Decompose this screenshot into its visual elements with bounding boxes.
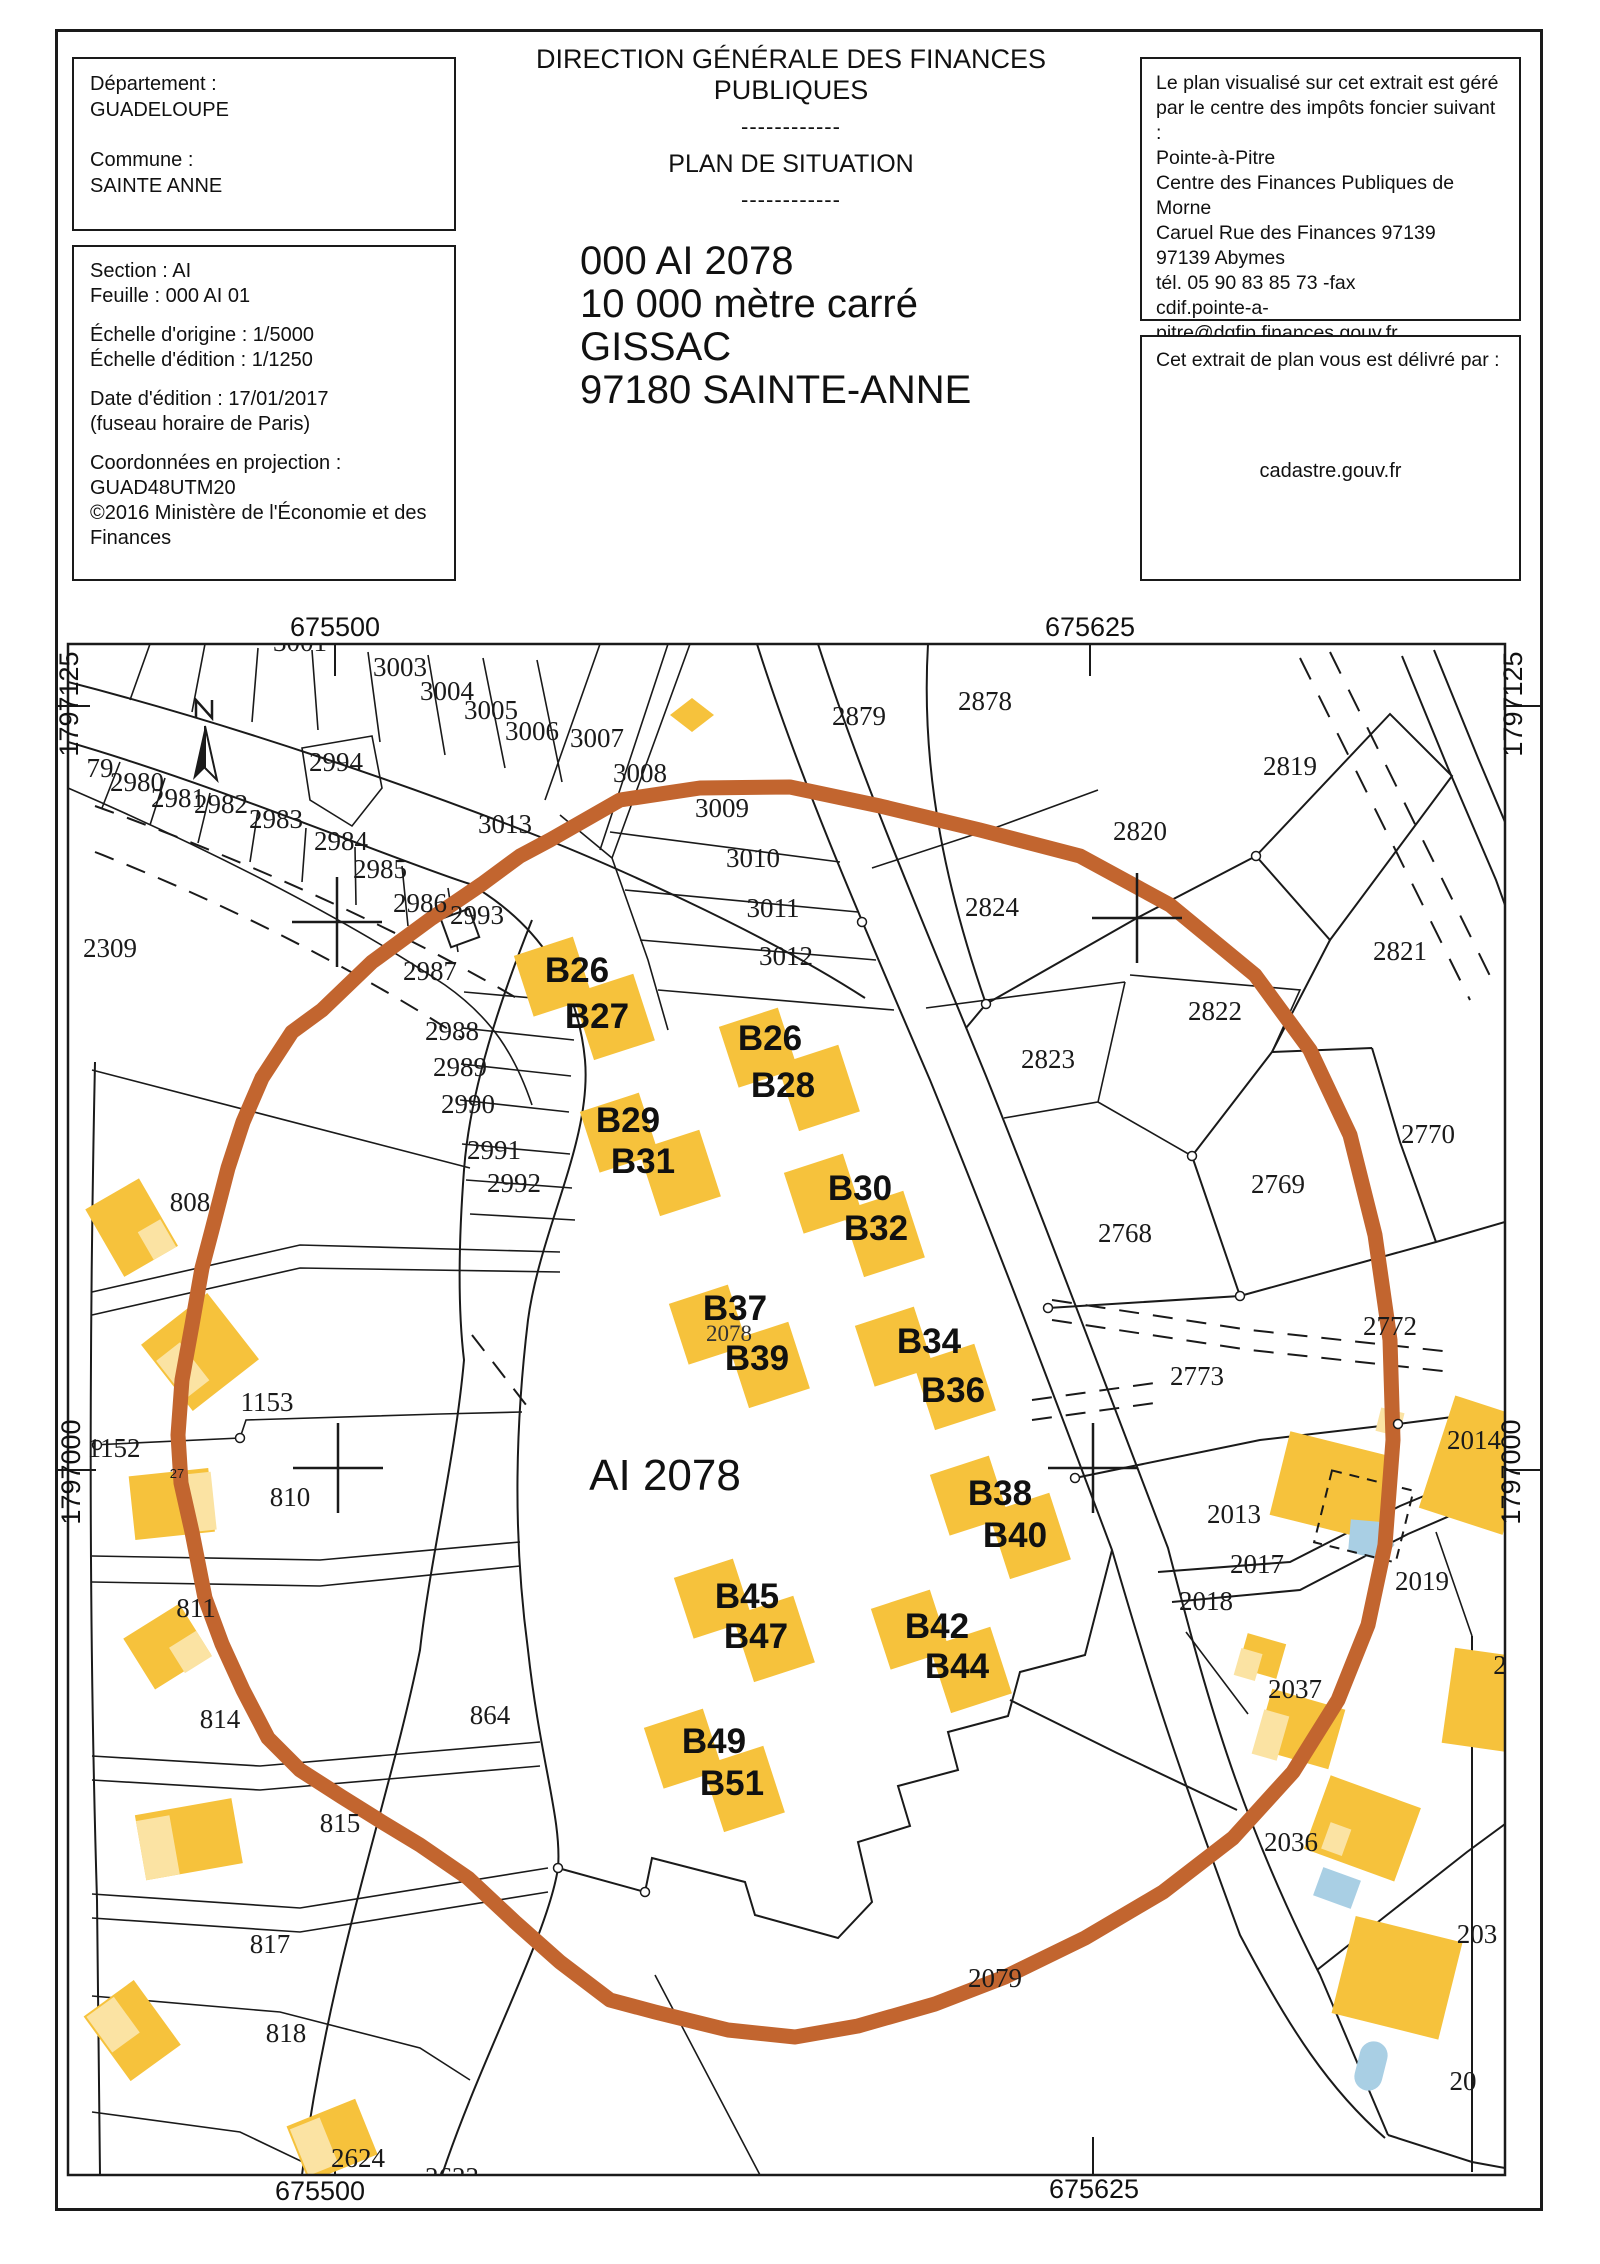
parcel-label-2018: 2018	[1179, 1586, 1233, 1616]
building-label-B29: B29	[596, 1101, 660, 1140]
parcel-label-814: 814	[200, 1704, 241, 1734]
parcel-label-3013: 3013	[478, 809, 532, 839]
parcel-label-3012: 3012	[759, 941, 813, 971]
parcel-label-27: 27	[170, 1466, 184, 1481]
map-labels: 3001300330043005300630073008300930103011…	[83, 627, 1507, 2192]
building-label-B51: B51	[700, 1764, 764, 1803]
parcel-label-2986: 2986	[393, 888, 447, 918]
parcel-label-3007: 3007	[570, 723, 624, 753]
parcel-label-2991: 2991	[467, 1135, 521, 1165]
building-label-B47: B47	[724, 1617, 788, 1656]
parcel-label-2992: 2992	[487, 1168, 541, 1198]
parcel-label-2079: 2079	[968, 1963, 1022, 1993]
parcel-label-2984: 2984	[314, 826, 369, 856]
parcel-label-2014: 2014	[1447, 1425, 1502, 1455]
parcel-label-2990: 2990	[441, 1089, 495, 1119]
parcel-label-2821: 2821	[1373, 936, 1427, 966]
parcel-label-1153: 1153	[241, 1387, 294, 1417]
parcel-label-3011: 3011	[747, 893, 800, 923]
parcel-label-2823: 2823	[1021, 1044, 1075, 1074]
parcel-label-2982: 2982	[194, 789, 248, 819]
parcel-label-3006: 3006	[505, 716, 559, 746]
pool-2036	[1313, 1867, 1361, 1909]
coord-top-right: 675625	[1045, 612, 1135, 642]
parcel-label-3009: 3009	[695, 793, 749, 823]
building-right-edge	[1442, 1648, 1523, 1753]
building-label-B26: B26	[738, 1019, 802, 1058]
coord-top-left: 675500	[290, 612, 380, 642]
parcel-label-2773: 2773	[1170, 1361, 1224, 1391]
building-label-B34: B34	[897, 1322, 962, 1361]
parcel-label-2822: 2822	[1188, 996, 1242, 1026]
building-label-B31: B31	[611, 1142, 675, 1181]
parcel-label-811: 811	[176, 1593, 216, 1623]
coord-right-bottom: 1797000	[1496, 1419, 1526, 1524]
parcel-label-20: 20	[1450, 2066, 1477, 2096]
coord-left-top: 1797125	[54, 651, 84, 756]
building-815	[135, 1798, 243, 1880]
parcel-label-2994: 2994	[309, 747, 364, 777]
parcel-label-815: 815	[320, 1808, 361, 1838]
building-diamond	[670, 698, 714, 732]
parcel-label-2989: 2989	[433, 1052, 487, 1082]
parcel-label-864: 864	[470, 1700, 511, 1730]
parcel-label-2820: 2820	[1113, 816, 1167, 846]
building-label-B28: B28	[751, 1066, 815, 1105]
parcel-label-2624: 2624	[331, 2143, 386, 2173]
parcel-label-2769: 2769	[1251, 1169, 1305, 1199]
coord-right-top: 1797125	[1498, 651, 1528, 756]
north-arrow-icon	[193, 700, 217, 780]
coord-bottom-right: 675625	[1049, 2174, 1139, 2204]
building-label-B27: B27	[565, 997, 629, 1036]
building-label-B49: B49	[682, 1722, 746, 1761]
parcel-label-2819: 2819	[1263, 751, 1317, 781]
building-label-B45: B45	[715, 1577, 779, 1616]
duplex-b34-b36	[855, 1292, 996, 1443]
parcel-label-808: 808	[170, 1187, 211, 1217]
coord-left-bottom: 1797000	[56, 1419, 86, 1524]
parcel-label-2013: 2013	[1207, 1499, 1261, 1529]
parcel-label-2985: 2985	[353, 854, 407, 884]
highlight-ring	[178, 787, 1393, 2037]
parcel-label-3003: 3003	[373, 652, 427, 682]
parcel-label-2772: 2772	[1363, 1311, 1417, 1341]
building-label-B40: B40	[983, 1516, 1047, 1555]
parcel-label-2983: 2983	[249, 804, 303, 834]
parcel-label-2019: 2019	[1395, 1566, 1449, 1596]
parcel-label-203: 203	[1457, 1919, 1498, 1949]
parcel-label-2988: 2988	[425, 1016, 479, 1046]
main-parcel-label: AI 2078	[589, 1451, 741, 1500]
parcel-label-2879: 2879	[832, 701, 886, 731]
building-2036	[1304, 1775, 1421, 1881]
parcel-label-3010: 3010	[726, 843, 780, 873]
parcel-label-2768: 2768	[1098, 1218, 1152, 1248]
building-label-B44: B44	[925, 1647, 990, 1686]
building-label-B36: B36	[921, 1371, 985, 1410]
building-label-B30: B30	[828, 1169, 892, 1208]
parcel-label-2017: 2017	[1230, 1549, 1284, 1579]
parcel-label-2824: 2824	[965, 892, 1020, 922]
parcel-label-2770: 2770	[1401, 1119, 1455, 1149]
cadastral-map: 3001300330043005300630073008300930103011…	[0, 0, 1600, 2264]
parcel-label-2309: 2309	[83, 933, 137, 963]
parcel-label-810: 810	[270, 1482, 311, 1512]
parcel-label-2036: 2036	[1264, 1827, 1318, 1857]
parcel-label-817: 817	[250, 1929, 291, 1959]
building-label-B38: B38	[968, 1474, 1032, 1513]
building-808	[85, 1178, 178, 1277]
building-label-B42: B42	[905, 1607, 969, 1646]
building-label-B26: B26	[545, 951, 609, 990]
parcel-label-2993: 2993	[450, 900, 504, 930]
coord-bottom-left: 675500	[275, 2176, 365, 2206]
building-label-B37: B37	[703, 1289, 767, 1328]
parcel-label-818: 818	[266, 2018, 307, 2048]
parcel-label-2623: 2623	[425, 2162, 479, 2192]
pool-2035	[1351, 2038, 1390, 2093]
parcel-label-2878: 2878	[958, 686, 1012, 716]
building-2035	[1332, 1916, 1463, 2040]
building-label-B39: B39	[725, 1339, 789, 1378]
parcel-label-3008: 3008	[613, 758, 667, 788]
building-label-B32: B32	[844, 1209, 908, 1248]
parcel-label-2987: 2987	[403, 956, 457, 986]
parcel-label-2037: 2037	[1268, 1674, 1322, 1704]
parcel-label-1152: 1152	[88, 1433, 141, 1463]
